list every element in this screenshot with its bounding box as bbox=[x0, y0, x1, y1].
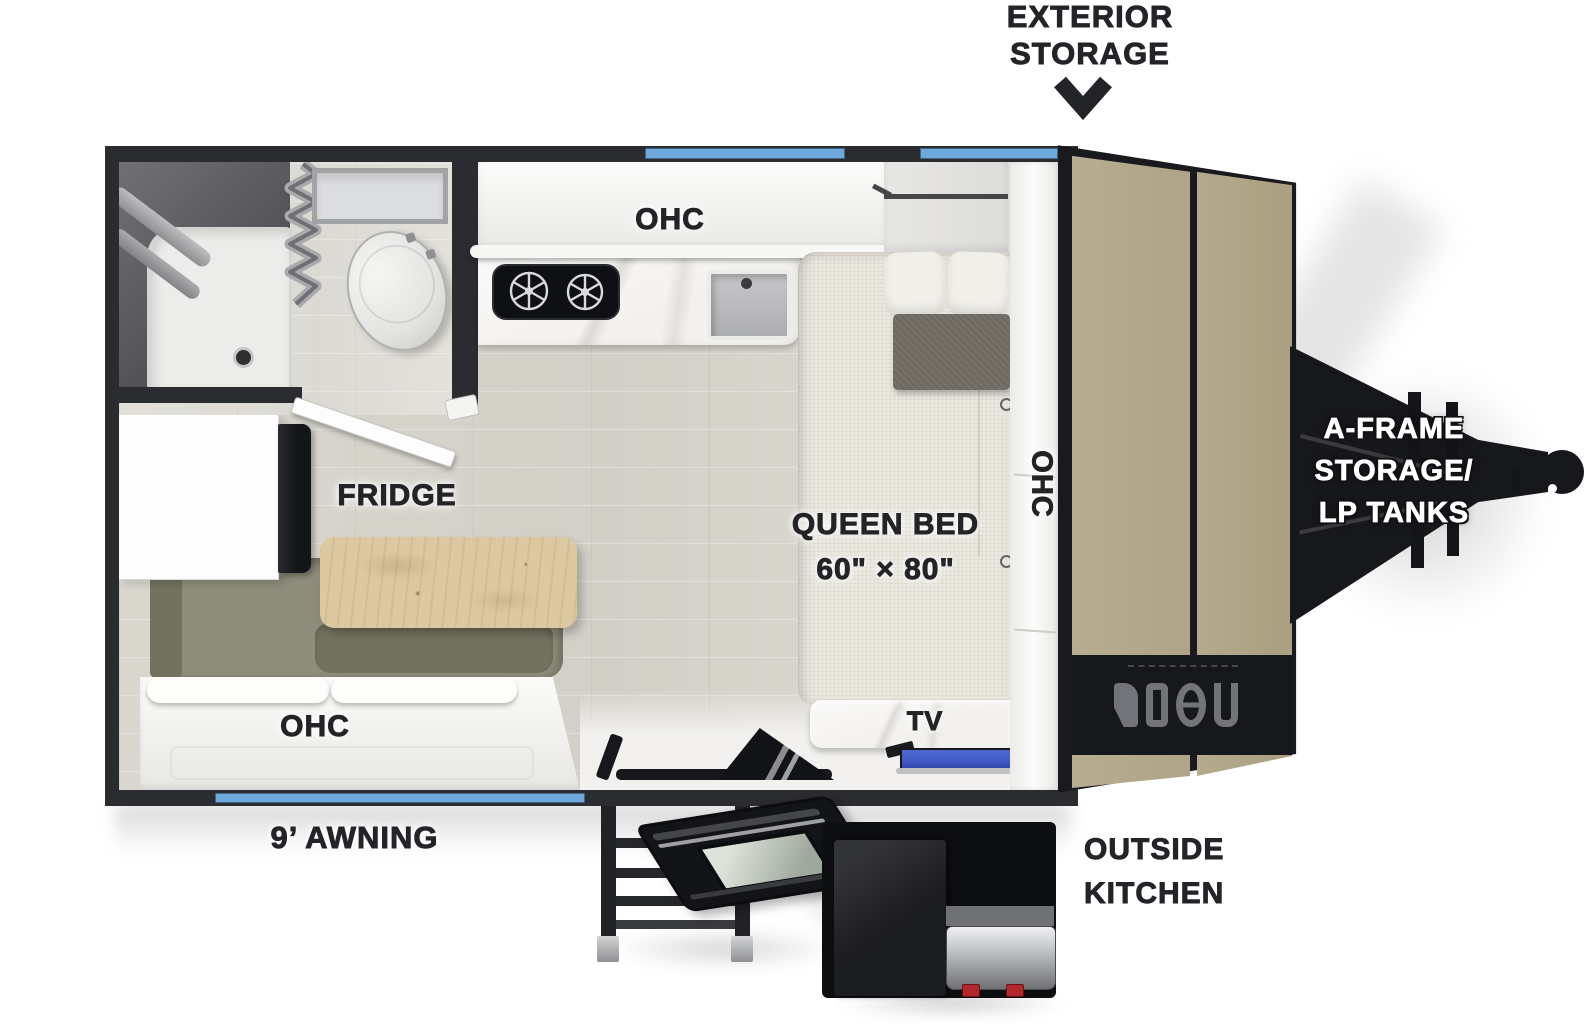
jack-handle bbox=[1512, 468, 1519, 490]
kitchen-ohc-label: OHC bbox=[600, 203, 740, 237]
a-frame-line2: STORAGE/ bbox=[1294, 450, 1494, 492]
coupler-notch bbox=[1548, 484, 1557, 493]
faucet bbox=[741, 278, 752, 289]
shadow bbox=[610, 928, 840, 970]
dinette-ohc-label: OHC bbox=[250, 710, 380, 744]
fridge-counter bbox=[117, 413, 279, 580]
fridge-label: FRIDGE bbox=[312, 479, 482, 513]
queen-bed-label: QUEEN BED 60" × 80" bbox=[768, 502, 1003, 592]
griddle bbox=[946, 926, 1056, 990]
queen-bed-line2: 60" × 80" bbox=[768, 547, 1003, 592]
brand-band bbox=[1072, 655, 1292, 755]
shower-pan bbox=[147, 227, 292, 391]
step-foot bbox=[597, 936, 619, 962]
outside-kitchen-label: OUTSIDE KITCHEN bbox=[1084, 828, 1224, 916]
tv-label: TV bbox=[880, 706, 970, 737]
chevron-down-icon bbox=[1052, 76, 1114, 124]
awning-window-strip bbox=[215, 793, 585, 803]
bench-seat bbox=[315, 624, 553, 673]
outside-kitchen-cooler bbox=[834, 840, 946, 996]
step-rung bbox=[601, 920, 750, 929]
exterior-storage-label: EXTERIOR STORAGE bbox=[955, 0, 1225, 72]
brand-graphic bbox=[1114, 677, 1264, 733]
brand-graphic bbox=[1128, 665, 1238, 670]
exterior-storage-line2: STORAGE bbox=[955, 35, 1225, 72]
cooktop bbox=[492, 264, 620, 320]
a-frame-line1: A-FRAME bbox=[1294, 408, 1494, 450]
coupler bbox=[1540, 450, 1584, 494]
step-foot bbox=[731, 936, 753, 962]
cabinet-door-top bbox=[147, 677, 329, 703]
awning-label: 9’ AWNING bbox=[232, 820, 477, 856]
step-rail bbox=[601, 806, 616, 939]
floorplan-canvas: EXTERIOR STORAGE FRIDGE OHC bbox=[0, 0, 1589, 1035]
dinette-table bbox=[320, 537, 577, 628]
tv-shelf-edge bbox=[896, 768, 1014, 774]
curtain-rod bbox=[884, 194, 1008, 199]
bolster-cushion bbox=[893, 314, 1010, 390]
window-strip bbox=[645, 148, 845, 159]
griddle-shelf bbox=[946, 906, 1054, 926]
front-ohc-label: OHC bbox=[1008, 436, 1062, 532]
bathroom-wall-right bbox=[452, 146, 478, 415]
outside-kitchen-line2: KITCHEN bbox=[1084, 872, 1224, 916]
pillow bbox=[883, 251, 946, 317]
griddle-knob bbox=[1006, 984, 1024, 997]
bathroom-window bbox=[312, 168, 448, 224]
cabinet-relief bbox=[170, 746, 534, 780]
queen-bed-line1: QUEEN BED bbox=[768, 502, 1003, 547]
bathroom-wall-bottom bbox=[105, 387, 302, 403]
exterior-storage-line1: EXTERIOR bbox=[955, 0, 1225, 35]
griddle-knob bbox=[962, 984, 980, 997]
a-frame-label: A-FRAME STORAGE/ LP TANKS bbox=[1294, 408, 1494, 534]
outside-kitchen-line1: OUTSIDE bbox=[1084, 828, 1224, 872]
cabinet-door-top bbox=[331, 677, 517, 703]
wall-left bbox=[105, 146, 119, 806]
pillow bbox=[946, 251, 1010, 317]
fridge bbox=[278, 424, 311, 573]
window-strip bbox=[920, 148, 1058, 159]
bed-head-shelf bbox=[884, 162, 1008, 252]
shower-drain bbox=[233, 347, 254, 368]
a-frame-line3: LP TANKS bbox=[1294, 492, 1494, 534]
